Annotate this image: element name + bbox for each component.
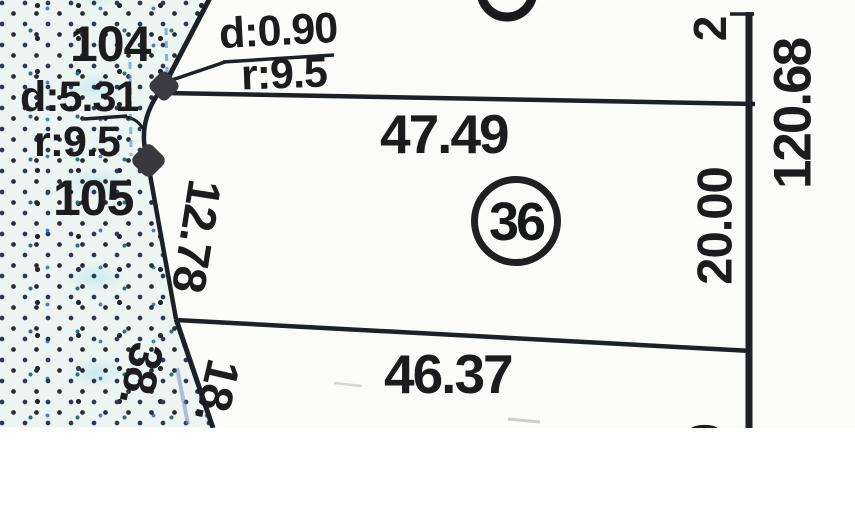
curve2-radius-label: r:9.5 bbox=[34, 121, 120, 164]
curve2-chord-label: d:5.31 bbox=[20, 76, 138, 119]
blue-streak-artifact bbox=[177, 368, 188, 424]
scan-bottom-margin bbox=[0, 428, 855, 509]
curve1-leader-line bbox=[172, 62, 225, 80]
parcel-number: 36 bbox=[489, 191, 543, 253]
back-dimension-label: 46.37 bbox=[384, 347, 512, 402]
block-right-dimension-label: 120.68 bbox=[767, 39, 820, 189]
plat-map-scan: 104 d:0.90 r:9.5 d:5.31 r:9.5 105 47.49 … bbox=[0, 0, 855, 509]
side-right-dimension-label: 20.00 bbox=[692, 167, 741, 285]
adjacent-left-dimension-label: 38. bbox=[113, 339, 172, 410]
scan-smudge bbox=[508, 419, 540, 422]
parcel-number-circle: 36 bbox=[471, 176, 561, 266]
scan-smudge bbox=[334, 383, 362, 386]
top-right-partial-dimension-label: 2 bbox=[687, 17, 733, 42]
survey-point-105-dot bbox=[129, 141, 167, 179]
curve1-radius-label: r:9.5 bbox=[240, 52, 327, 98]
front-dimension-label: 47.49 bbox=[380, 107, 508, 162]
survey-point-104-dot bbox=[147, 69, 181, 103]
left-lower-dimension-label: 18. bbox=[188, 355, 248, 426]
adjacent-lot-side-line bbox=[165, 0, 211, 84]
adjacent-parcel-circle-partial bbox=[481, 0, 533, 17]
survey-point-104-label: 104 bbox=[70, 19, 150, 69]
survey-point-105-label: 105 bbox=[53, 173, 133, 223]
blue-dash-artifact bbox=[166, 28, 167, 74]
